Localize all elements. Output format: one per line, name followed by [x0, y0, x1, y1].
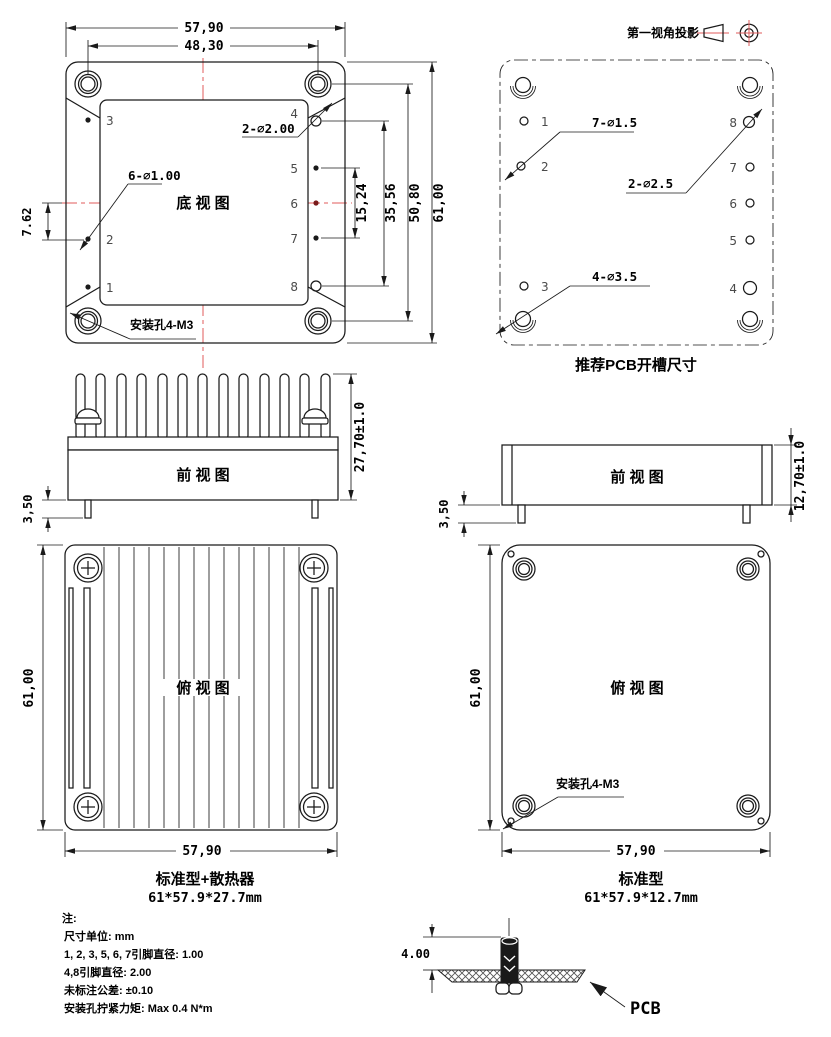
dim-61-00-std: 61,00: [469, 668, 484, 707]
callout-mounting-hole: 安装孔4-M3: [130, 317, 194, 332]
front-std-title: 前 视 图: [610, 468, 663, 486]
hole-7-number: 7: [729, 161, 737, 175]
corner-notch: [738, 78, 763, 99]
dim-61-00: 61,00: [432, 183, 447, 222]
hole-5-number: 5: [729, 234, 737, 248]
dim-61-00-hs: 61,00: [22, 668, 37, 707]
top-view-heatsink: 俯 视 图 61,00 57,90 标准型+散热器 61*57.9*27.7mm: [22, 545, 337, 906]
caption-size-standard: 61*57.9*12.7mm: [584, 890, 698, 906]
edge-slot: [329, 588, 333, 788]
pcb-view-title: 推荐PCB开槽尺寸: [575, 356, 697, 374]
front-view-standard: 前 视 图 12,70±1.0 3,50: [437, 428, 808, 537]
front-view-heatsink: 前 视 图 27,70±1.0 3,50: [21, 374, 368, 532]
dim-27-70: 27,70±1.0: [353, 402, 368, 473]
dim-7-62: 7.62: [20, 208, 34, 237]
notes-block: 注: 尺寸单位: mm 1, 2, 3, 5, 6, 7引脚直径: 1.00 4…: [62, 911, 213, 1015]
bottom-view: 3 2 1 4 5 6 7 8 底 视 图 57,90 48,30 15,24 …: [20, 20, 447, 368]
front-hs-title: 前 视 图: [176, 466, 229, 484]
hole-8: [744, 117, 755, 128]
pin-7-number: 7: [290, 232, 298, 246]
hole-8-number: 8: [729, 116, 737, 130]
dim-12-70: 12,70±1.0: [793, 441, 808, 512]
note-line-5: 未标注公差: ±0.10: [63, 983, 153, 997]
mounting-hole: [75, 71, 101, 97]
dim-48-30: 48,30: [184, 39, 223, 54]
hole-4: [744, 282, 757, 295]
solder-foot: [509, 983, 522, 994]
edge-slot: [69, 588, 73, 788]
pin-8-number: 8: [290, 280, 298, 294]
callout-mounting-hole-std: 安装孔4-M3: [556, 776, 620, 791]
bottom-view-title: 底 视 图: [176, 194, 229, 212]
dim-57-90: 57,90: [184, 21, 223, 36]
pin-3: [85, 117, 90, 122]
pin-8: [311, 281, 321, 291]
callout-7-d15: 7-∅1.5: [592, 115, 637, 130]
hole-4-number: 4: [729, 282, 737, 296]
note-line-1: 注:: [62, 911, 77, 925]
dim-3-50-std: 3,50: [437, 500, 451, 529]
projection-label: 第一视角投影: [627, 25, 699, 40]
callout-6-d1: 6-∅1.00: [128, 168, 181, 183]
caption-standard: 标准型: [617, 870, 663, 888]
dim-4-00: 4.00: [401, 947, 430, 961]
top-hs-title: 俯 视 图: [176, 679, 229, 697]
dim-57-90-hs: 57,90: [182, 844, 221, 859]
pin-1: [85, 284, 90, 289]
pin-5: [313, 165, 318, 170]
pin-7: [313, 235, 318, 240]
lead-pin: [743, 505, 750, 523]
dim-15-24: 15,24: [355, 183, 370, 222]
corner-screw: [300, 793, 328, 821]
solder-foot: [496, 983, 509, 994]
mounting-hole: [305, 71, 331, 97]
drawing-sheet: 第一视角投影: [0, 0, 831, 1037]
pin-4: [311, 116, 321, 126]
pin-3-number: 3: [106, 114, 114, 128]
dim-3-50-hs: 3,50: [21, 495, 35, 524]
top-std-title: 俯 视 图: [610, 679, 663, 697]
corner-notch: [738, 312, 763, 333]
note-line-2: 尺寸单位: mm: [64, 929, 134, 943]
corner-screw: [74, 793, 102, 821]
hole-3: [520, 282, 528, 290]
projection-symbol: 第一视角投影: [627, 20, 762, 46]
pin-4-number: 4: [290, 107, 298, 121]
caption-standard-heatsink: 标准型+散热器: [155, 870, 256, 888]
technical-drawing: 第一视角投影: [0, 0, 831, 1037]
lead-pin: [85, 500, 91, 518]
edge-slot: [84, 588, 90, 788]
dim-57-90-std: 57,90: [616, 844, 655, 859]
corner-screw: [300, 554, 328, 582]
hole-2-number: 2: [541, 160, 549, 174]
pin-6-number: 6: [290, 197, 298, 211]
pcb-cross-section: 4.00 PCB: [401, 918, 661, 1019]
top-view-standard: 俯 视 图 安装孔4-M3 61,00 57,90 标准型 61*57.9*12…: [469, 545, 770, 906]
dim-35-56: 35,56: [384, 183, 399, 222]
pin-6: [313, 200, 318, 205]
callout-4-d35: 4-∅3.5: [592, 269, 637, 284]
hole-6-number: 6: [729, 197, 737, 211]
heatsink-base: [68, 437, 338, 450]
corner-notch: [511, 78, 536, 99]
dim-50-80: 50,80: [408, 183, 423, 222]
caption-size-heatsink: 61*57.9*27.7mm: [148, 890, 262, 906]
pin-1-number: 1: [106, 281, 114, 295]
corner-screw: [74, 554, 102, 582]
hole-3-number: 3: [541, 280, 549, 294]
hole-5: [746, 236, 754, 244]
hole-7: [746, 163, 754, 171]
callout-2-d2: 2-∅2.00: [242, 121, 295, 136]
lead-pin: [312, 500, 318, 518]
mounting-hole: [305, 308, 331, 334]
hole-6: [746, 199, 754, 207]
pin-5-number: 5: [290, 162, 298, 176]
callout-2-d25: 2-∅2.5: [628, 176, 673, 191]
pin-2-number: 2: [106, 233, 114, 247]
edge-slot: [312, 588, 318, 788]
pcb-label: PCB: [630, 999, 661, 1019]
lead-pin: [518, 505, 525, 523]
note-line-3: 1, 2, 3, 5, 6, 7引脚直径: 1.00: [64, 947, 203, 961]
note-line-6: 安装孔拧紧力矩: Max 0.4 N*m: [64, 1001, 213, 1015]
pcb-slot-view: 1 2 3 8 7 6 5 4 7-∅1.5 2-∅2.5 4-∅3.5 推荐P…: [496, 60, 773, 374]
note-line-4: 4,8引脚直径: 2.00: [64, 965, 151, 979]
hole-1: [520, 117, 528, 125]
heatsink-fins: [76, 374, 330, 440]
hole-1-number: 1: [541, 115, 549, 129]
